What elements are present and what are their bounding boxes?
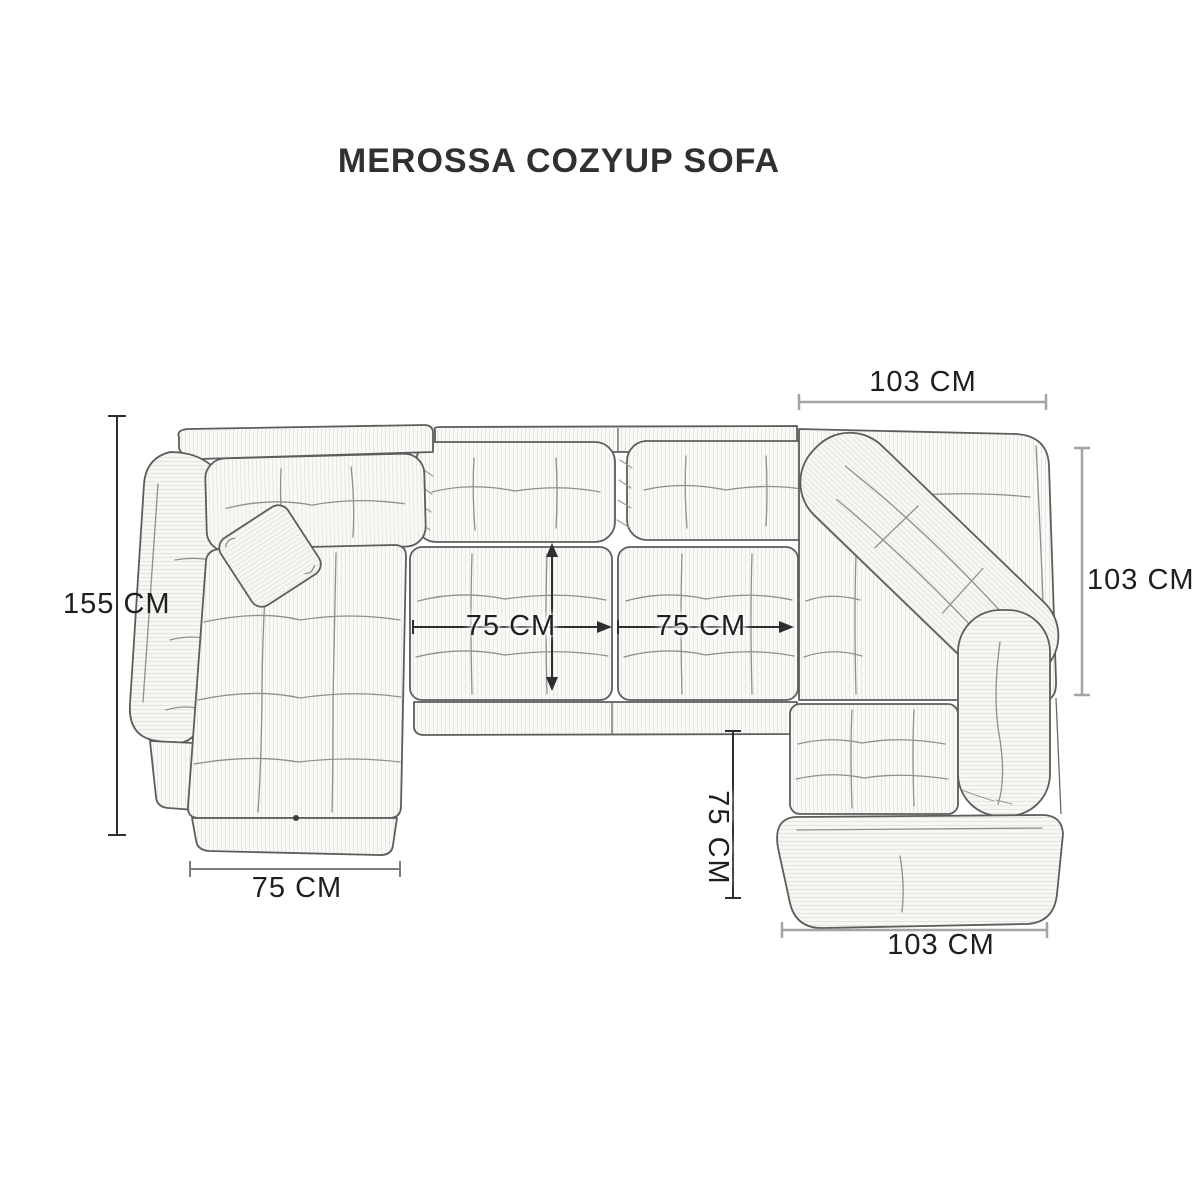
sofa-illustration — [0, 0, 1200, 1200]
dim-label-right-depth: 103 CM — [1087, 564, 1195, 597]
dim-label-seat1-width: 75 CM — [466, 610, 556, 643]
right-armrest — [777, 815, 1063, 928]
sofa-middle-seats — [410, 426, 824, 735]
front-button — [293, 815, 299, 821]
dim-label-chaise-width: 75 CM — [252, 872, 342, 905]
dim-label-top-width: 103 CM — [869, 366, 977, 399]
dim-line-155cm — [108, 416, 126, 835]
dim-label-bottom-width: 103 CM — [887, 929, 995, 962]
dim-label-left-length: 155 CM — [63, 588, 171, 621]
dimension-diagram-page: MEROSSA COZYUP SOFA — [0, 0, 1200, 1200]
dim-label-seat2-width: 75 CM — [656, 610, 746, 643]
sofa-left-chaise-module — [130, 425, 433, 855]
dim-label-right-seat-depth: 75 CM — [701, 790, 734, 885]
right-arm-bolster — [958, 610, 1050, 816]
